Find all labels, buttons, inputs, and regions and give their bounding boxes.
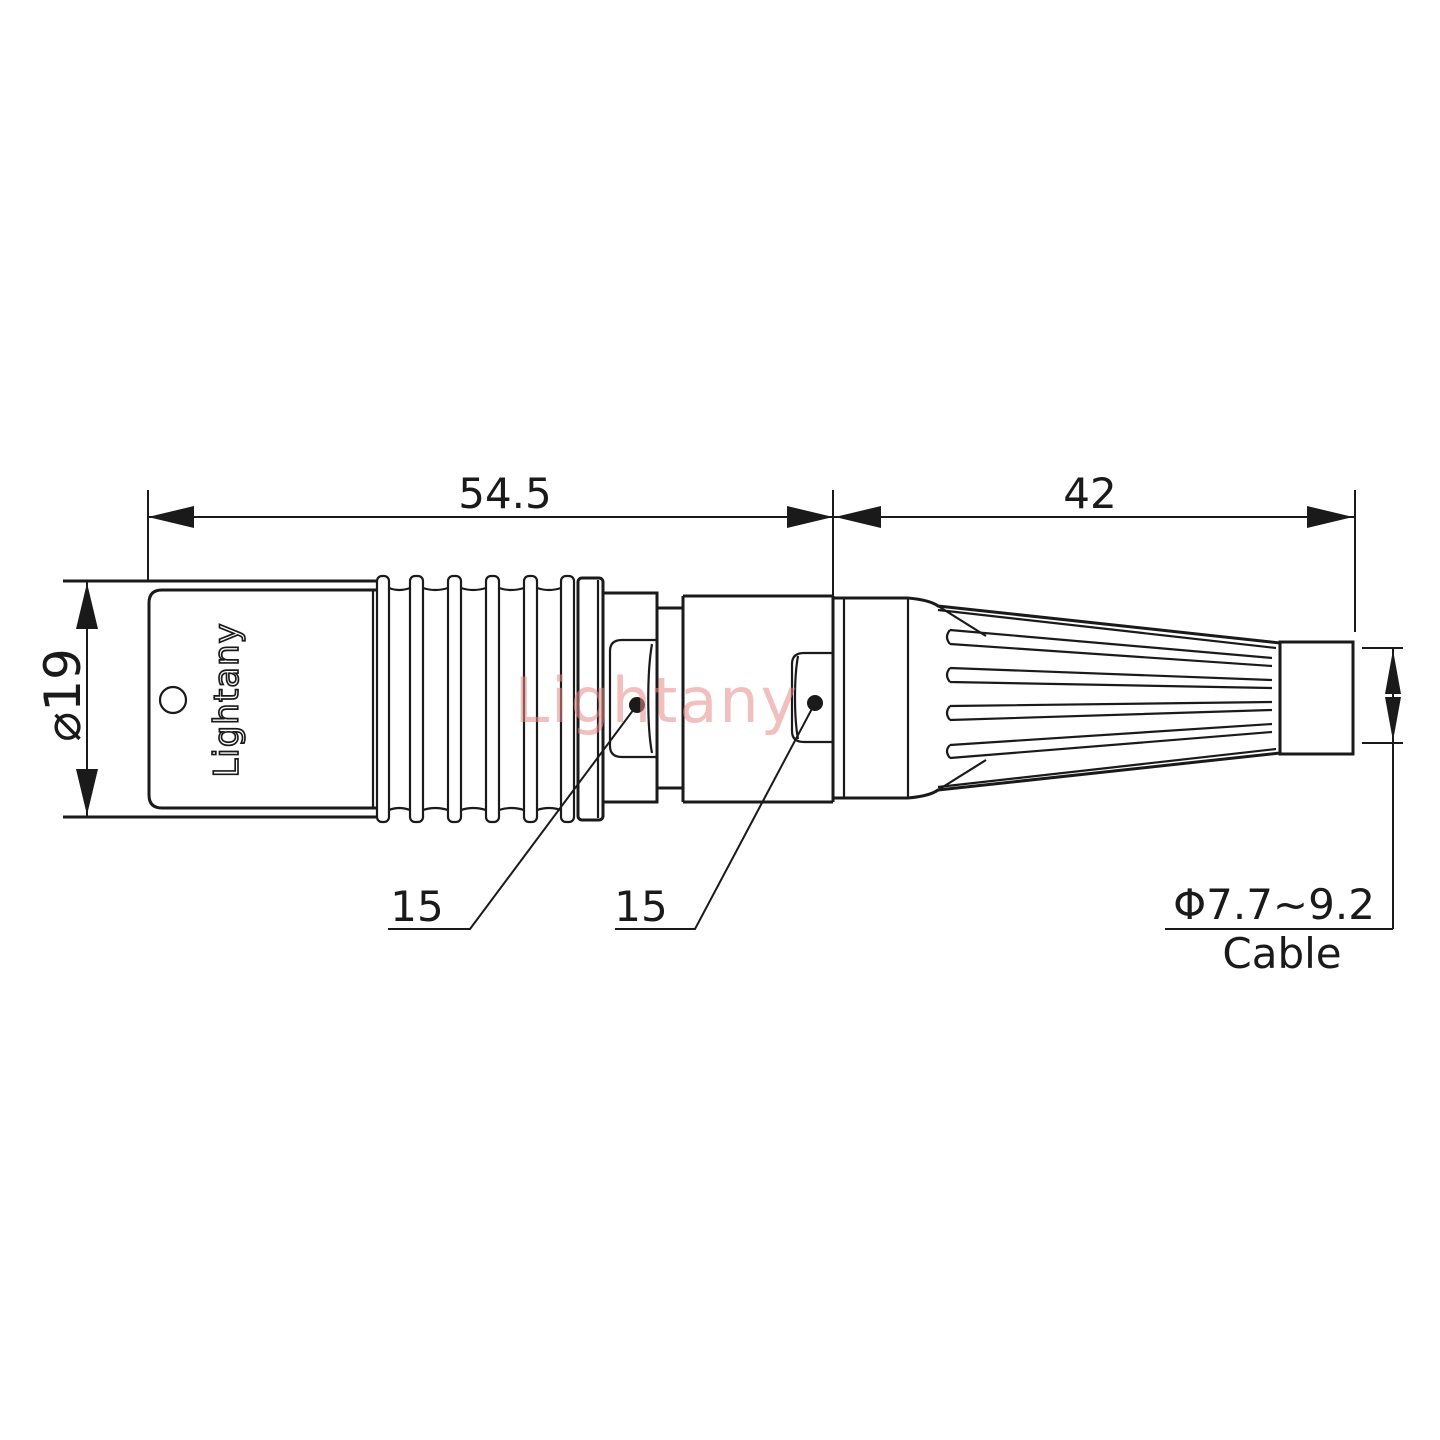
dimension-rear-length: 42 — [833, 469, 1355, 632]
rear-latch-value: 15 — [614, 882, 667, 931]
arrowhead-down-icon — [76, 769, 98, 815]
watermark-text: Lightany — [515, 664, 800, 737]
arrowhead-left-icon — [835, 506, 881, 528]
arrowhead-left-icon — [148, 506, 194, 528]
arrowhead-down-icon — [1385, 697, 1401, 741]
leader-dot — [807, 695, 823, 711]
technical-drawing-page: Lightany — [0, 0, 1440, 1440]
cable-range-value: Φ7.7~9.2 — [1173, 880, 1375, 929]
tick-lines — [1362, 648, 1403, 743]
connector-drawing-canvas: Lightany — [0, 0, 1440, 1440]
front-face-hole — [160, 687, 186, 713]
dimension-body-diameter: ⌀19 — [34, 581, 98, 817]
strain-relief-fins — [938, 606, 1276, 790]
arrowhead-up-icon — [1385, 650, 1401, 694]
back-shell — [833, 598, 1280, 798]
front-latch-value: 15 — [390, 882, 443, 931]
front-face-plate — [149, 590, 377, 808]
dimension-cable: Φ7.7~9.2 Cable — [1165, 648, 1403, 978]
cable-end-sleeve — [1280, 642, 1353, 754]
arrowhead-right-icon — [1307, 506, 1353, 528]
arrowhead-right-icon — [787, 506, 833, 528]
cable-label: Cable — [1222, 929, 1341, 978]
front-length-value: 54.5 — [458, 469, 552, 518]
body-diameter-value: ⌀19 — [34, 648, 92, 742]
body-brand-text: Lightany — [207, 622, 247, 777]
arrowhead-up-icon — [76, 583, 98, 629]
rear-length-value: 42 — [1063, 469, 1116, 518]
